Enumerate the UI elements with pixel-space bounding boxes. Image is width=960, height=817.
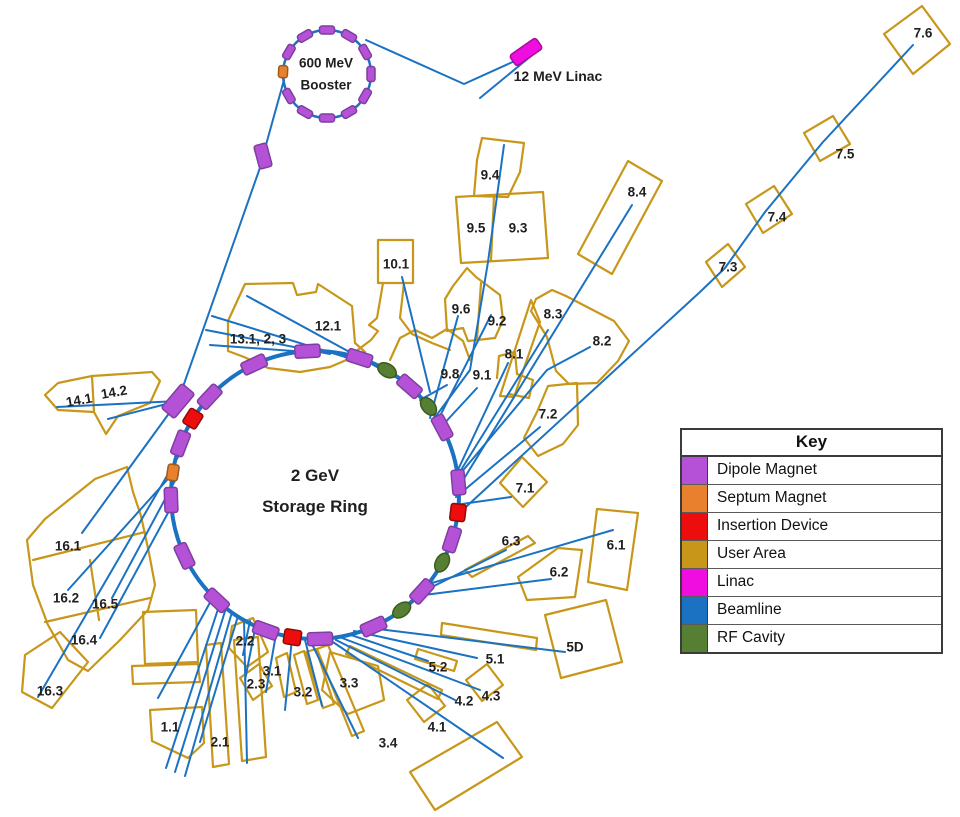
key-item-label: User Area <box>708 541 786 568</box>
beamline <box>200 616 238 742</box>
label-storage-ring: Storage Ring <box>262 497 368 516</box>
key-title: Key <box>682 430 941 457</box>
key-row: Dipole Magnet <box>682 457 941 485</box>
dipole-magnet <box>367 67 375 82</box>
insertion-device <box>449 503 466 522</box>
label-beamline-16.5: 16.5 <box>92 597 119 612</box>
key-box: Key Dipole MagnetSeptum MagnetInsertion … <box>680 428 943 654</box>
label-beamline-4.3: 4.3 <box>482 689 501 704</box>
map-svg: 7.67.57.47.38.48.38.28.19.49.59.39.69.29… <box>0 0 960 817</box>
beamline <box>82 401 178 533</box>
dipole-magnet <box>442 526 462 554</box>
dipole-magnet <box>164 487 178 512</box>
label-beamline-9.1: 9.1 <box>473 368 492 383</box>
label-beamline-7.4: 7.4 <box>768 210 787 225</box>
label-beamline-5.2: 5.2 <box>429 660 448 675</box>
label-beamline-5.1: 5.1 <box>486 652 505 667</box>
label-beamline-7.5: 7.5 <box>836 147 855 162</box>
dipole-magnet <box>297 29 314 43</box>
label-beamline-2.3: 2.3 <box>247 677 266 692</box>
label-beamline-10.1: 10.1 <box>383 257 410 272</box>
beamline <box>456 330 548 478</box>
label-beamline-8.4: 8.4 <box>628 185 647 200</box>
label-beamline-14.1: 14.1 <box>65 390 94 409</box>
dipole-magnet <box>346 348 374 368</box>
label-storage-ring-energy: 2 GeV <box>291 466 340 485</box>
label-beamline-8.2: 8.2 <box>593 334 612 349</box>
dipole-magnet <box>170 429 191 457</box>
user-area-divider <box>400 283 450 350</box>
beamline <box>455 497 511 505</box>
label-beamline-7.1: 7.1 <box>516 481 535 496</box>
key-item-label: Septum Magnet <box>708 485 826 512</box>
dipole-magnet <box>307 632 332 646</box>
user-area <box>346 646 442 699</box>
key-item-label: Beamline <box>708 597 782 624</box>
user-area <box>143 610 198 664</box>
user_area-swatch <box>682 541 708 568</box>
dipole-swatch <box>682 457 708 484</box>
dipole-magnet <box>341 29 358 43</box>
label-beamline-8.1: 8.1 <box>505 347 524 362</box>
label-beamline-3.3: 3.3 <box>340 676 359 691</box>
dipole-magnet <box>282 88 296 105</box>
label-beamline-16.4: 16.4 <box>71 633 98 648</box>
label-beamline-3.1: 3.1 <box>263 664 282 679</box>
septum-swatch <box>682 485 708 512</box>
insertion-swatch <box>682 513 708 540</box>
label-beamline-6.1: 6.1 <box>607 538 626 553</box>
label-beamline-9.6: 9.6 <box>452 302 471 317</box>
septum-magnet <box>278 65 288 77</box>
rf-cavity <box>432 551 453 575</box>
beamline <box>366 40 517 84</box>
label-beamline-9.8: 9.8 <box>441 367 460 382</box>
user-area-divider <box>355 283 383 352</box>
label-booster-energy: 600 MeV <box>299 56 353 71</box>
linac-swatch <box>682 569 708 596</box>
dipole-magnet <box>360 616 388 638</box>
label-beamline-4.1: 4.1 <box>428 720 447 735</box>
dipole-magnet <box>295 344 321 358</box>
label-beamline-7.6: 7.6 <box>914 26 933 41</box>
dipole-magnet <box>254 143 273 170</box>
dipole-magnet <box>451 469 466 495</box>
dipole-magnet <box>173 542 195 570</box>
dipole-magnet <box>297 105 314 119</box>
booster-ring <box>283 30 371 118</box>
label-beamline-9.3: 9.3 <box>509 221 528 236</box>
key-item-label: Linac <box>708 569 754 596</box>
key-rows: Dipole MagnetSeptum MagnetInsertion Devi… <box>682 457 941 652</box>
user-area-divider <box>33 532 145 560</box>
beamline-swatch <box>682 597 708 624</box>
dipole-magnet <box>320 26 335 34</box>
user-area <box>578 161 662 274</box>
dipole-magnet <box>282 44 296 61</box>
key-row: Septum Magnet <box>682 485 941 513</box>
label-beamline-7.2: 7.2 <box>539 407 558 422</box>
label-booster: Booster <box>300 78 352 93</box>
key-row: Insertion Device <box>682 513 941 541</box>
label-beamline-16.2: 16.2 <box>53 591 79 606</box>
label-beamline-7.3: 7.3 <box>719 260 738 275</box>
label-beamline-1.1: 1.1 <box>161 720 180 735</box>
rf-swatch <box>682 625 708 652</box>
beamline <box>342 638 480 690</box>
beamline <box>100 500 175 638</box>
label-beamline-4.2: 4.2 <box>455 694 474 709</box>
user-area-divider <box>390 329 470 360</box>
beamline <box>264 80 284 152</box>
label-beamline-16.3: 16.3 <box>37 684 64 699</box>
linac <box>509 37 543 66</box>
label-beamline-16.1: 16.1 <box>55 539 82 554</box>
beamline <box>38 445 185 697</box>
label-beamline-3.2: 3.2 <box>294 685 313 700</box>
label-beamline-3.4: 3.4 <box>379 736 398 751</box>
label-beamline-9.5: 9.5 <box>467 221 486 236</box>
dipole-magnet <box>358 44 372 61</box>
user-area <box>132 664 200 684</box>
label-beamline-12.1: 12.1 <box>315 319 342 334</box>
label-beamline-2.2: 2.2 <box>236 634 255 649</box>
key-row: Linac <box>682 569 941 597</box>
dipole-magnet <box>320 114 335 122</box>
synchrotron-facility-diagram: 7.67.57.47.38.48.38.28.19.49.59.39.69.29… <box>0 0 960 817</box>
label-beamline-6.2: 6.2 <box>550 565 569 580</box>
user-area <box>410 722 522 810</box>
label-beamline-14.2: 14.2 <box>100 383 128 402</box>
key-row: User Area <box>682 541 941 569</box>
septum-magnet <box>166 464 179 482</box>
key-item-label: RF Cavity <box>708 625 785 652</box>
label-beamline-9.4: 9.4 <box>481 168 500 183</box>
label-beamline-5D: 5D <box>566 640 584 655</box>
dipole-magnet <box>358 88 372 105</box>
insertion-device <box>283 628 302 645</box>
dipole-magnet <box>341 105 358 119</box>
key-row: RF Cavity <box>682 625 941 652</box>
label-beamline-9.2: 9.2 <box>488 314 507 329</box>
label-beamline-13.1, 2, 3: 13.1, 2, 3 <box>230 332 287 347</box>
label-linac: 12 MeV Linac <box>514 68 603 84</box>
label-beamline-6.3: 6.3 <box>502 534 521 549</box>
key-item-label: Insertion Device <box>708 513 828 540</box>
label-beamline-2.1: 2.1 <box>211 735 230 750</box>
user-area-divider <box>92 376 94 412</box>
label-beamline-8.3: 8.3 <box>544 307 563 322</box>
key-row: Beamline <box>682 597 941 625</box>
key-item-label: Dipole Magnet <box>708 457 817 484</box>
